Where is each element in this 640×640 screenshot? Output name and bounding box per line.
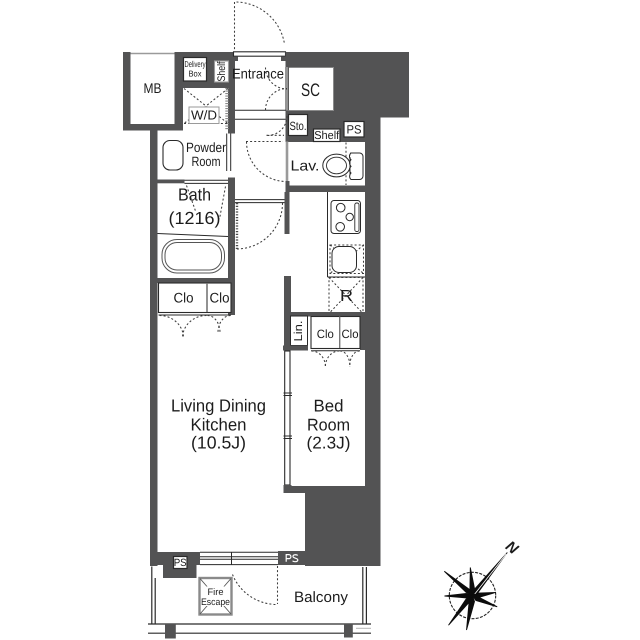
svg-text:Clo: Clo [174,290,194,306]
svg-text:Clo: Clo [342,327,359,341]
svg-text:Clo: Clo [210,290,230,306]
svg-text:Clo: Clo [317,327,334,341]
svg-text:Delivery: Delivery [185,59,207,69]
svg-text:Room: Room [307,416,350,435]
svg-text:Bed: Bed [314,397,344,416]
svg-text:Escape: Escape [201,597,230,608]
svg-text:PS: PS [347,123,362,137]
svg-text:(10.5J): (10.5J) [191,433,246,453]
svg-text:SC: SC [301,80,320,100]
svg-text:Kitchen: Kitchen [191,415,247,435]
svg-text:Entrance: Entrance [232,67,284,83]
svg-text:Balcony: Balcony [294,589,348,606]
svg-text:Room: Room [192,154,221,169]
svg-text:W/D: W/D [191,108,217,123]
svg-text:Bath: Bath [178,185,211,205]
svg-text:(2.3J): (2.3J) [307,434,351,453]
svg-text:PS: PS [174,557,187,569]
svg-text:Powder: Powder [186,140,226,155]
svg-text:R: R [340,288,353,305]
svg-text:Lin.: Lin. [293,321,305,342]
svg-text:MB: MB [144,80,162,96]
svg-text:Box: Box [189,68,203,78]
svg-text:Living Dining: Living Dining [171,396,266,416]
svg-text:Sto.: Sto. [290,119,307,133]
svg-text:Shelf: Shelf [216,61,228,82]
svg-text:(1216): (1216) [169,208,221,228]
svg-text:Lav.: Lav. [291,159,320,175]
svg-text:Shelf: Shelf [314,130,340,142]
